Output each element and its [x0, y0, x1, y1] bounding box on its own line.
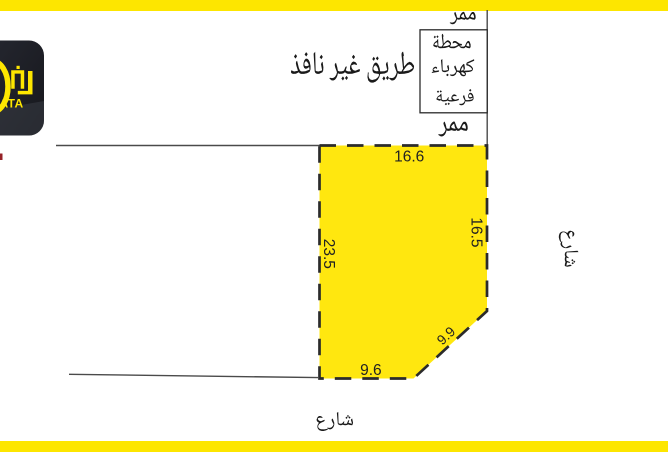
svg-text:ATA: ATA [0, 97, 24, 111]
svg-text:16.5: 16.5 [468, 217, 485, 247]
svg-text:23.5: 23.5 [320, 239, 337, 269]
svg-text:16.6: 16.6 [394, 148, 424, 165]
svg-text:9.6: 9.6 [360, 362, 382, 379]
